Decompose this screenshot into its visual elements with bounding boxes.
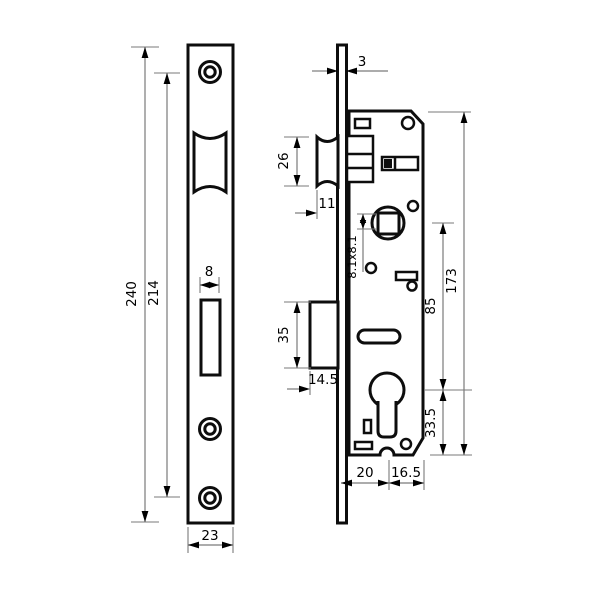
dim-plate-thickness-3: 3 [312, 54, 388, 74]
dim-label-8x8: 8.1x8.1 [345, 235, 359, 278]
screw-hole-top [200, 62, 221, 83]
dim-label-14-5: 14.5 [308, 372, 338, 388]
case-hole-top-right [402, 117, 414, 129]
screw-hole-middle [200, 419, 221, 440]
dim-label-20: 20 [356, 465, 373, 481]
case-hole-bottom-right [401, 439, 411, 449]
case-slot-horizontal [355, 442, 372, 449]
dim-label-23: 23 [201, 528, 218, 544]
dim-label-173: 173 [444, 268, 460, 294]
latch-bolt [317, 137, 338, 186]
dim-label-3: 3 [358, 54, 367, 70]
case-tab-top [355, 119, 370, 128]
dim-label-85: 85 [423, 297, 439, 314]
dim-label-35: 35 [276, 326, 292, 343]
mortise-lock-drawing: 240 214 8 23 3 26 [0, 0, 600, 600]
case-hole-left [366, 263, 376, 273]
latch-cutout [194, 133, 226, 192]
dim-label-8: 8 [205, 264, 214, 280]
dim-cylinder-to-rear-16-5: 16.5 [389, 460, 424, 490]
dim-label-33-5: 33.5 [423, 408, 439, 438]
faceplate-edge [338, 45, 347, 523]
lock-body-side-view [310, 45, 423, 523]
latch-tail [347, 136, 373, 182]
dim-label-11: 11 [318, 196, 335, 212]
latch-slider [382, 157, 418, 170]
dim-hole-spacing-214: 214 [146, 73, 180, 497]
case-slot-vertical [364, 420, 371, 433]
case-hole-near-follower [408, 201, 418, 211]
screw-hole-bottom [200, 488, 221, 509]
dim-body-height-173: 173 [428, 112, 472, 455]
dim-label-16-5: 16.5 [391, 465, 421, 481]
oval-slot [358, 330, 400, 343]
dim-deadbolt-height-35: 35 [276, 302, 311, 368]
dim-deadbolt-protrusion-14-5: 14.5 [287, 371, 338, 395]
dim-follower-to-cylinder-85: 85 [423, 223, 472, 390]
dim-backset-20: 20 [341, 460, 389, 490]
dim-plate-width-23: 23 [188, 527, 233, 553]
dim-label-240: 240 [124, 281, 140, 307]
dim-latch-height-26: 26 [276, 137, 309, 186]
deadbolt [310, 302, 338, 368]
dim-latch-protrusion-11: 11 [295, 190, 336, 219]
dim-label-26: 26 [276, 152, 292, 169]
deadbolt-slot [201, 300, 220, 375]
dim-label-214: 214 [146, 280, 162, 306]
spindle-follower [372, 207, 404, 239]
technical-drawing-page: 240 214 8 23 3 26 [0, 0, 600, 600]
dim-cylinder-to-bottom-33-5: 33.5 [423, 390, 446, 455]
